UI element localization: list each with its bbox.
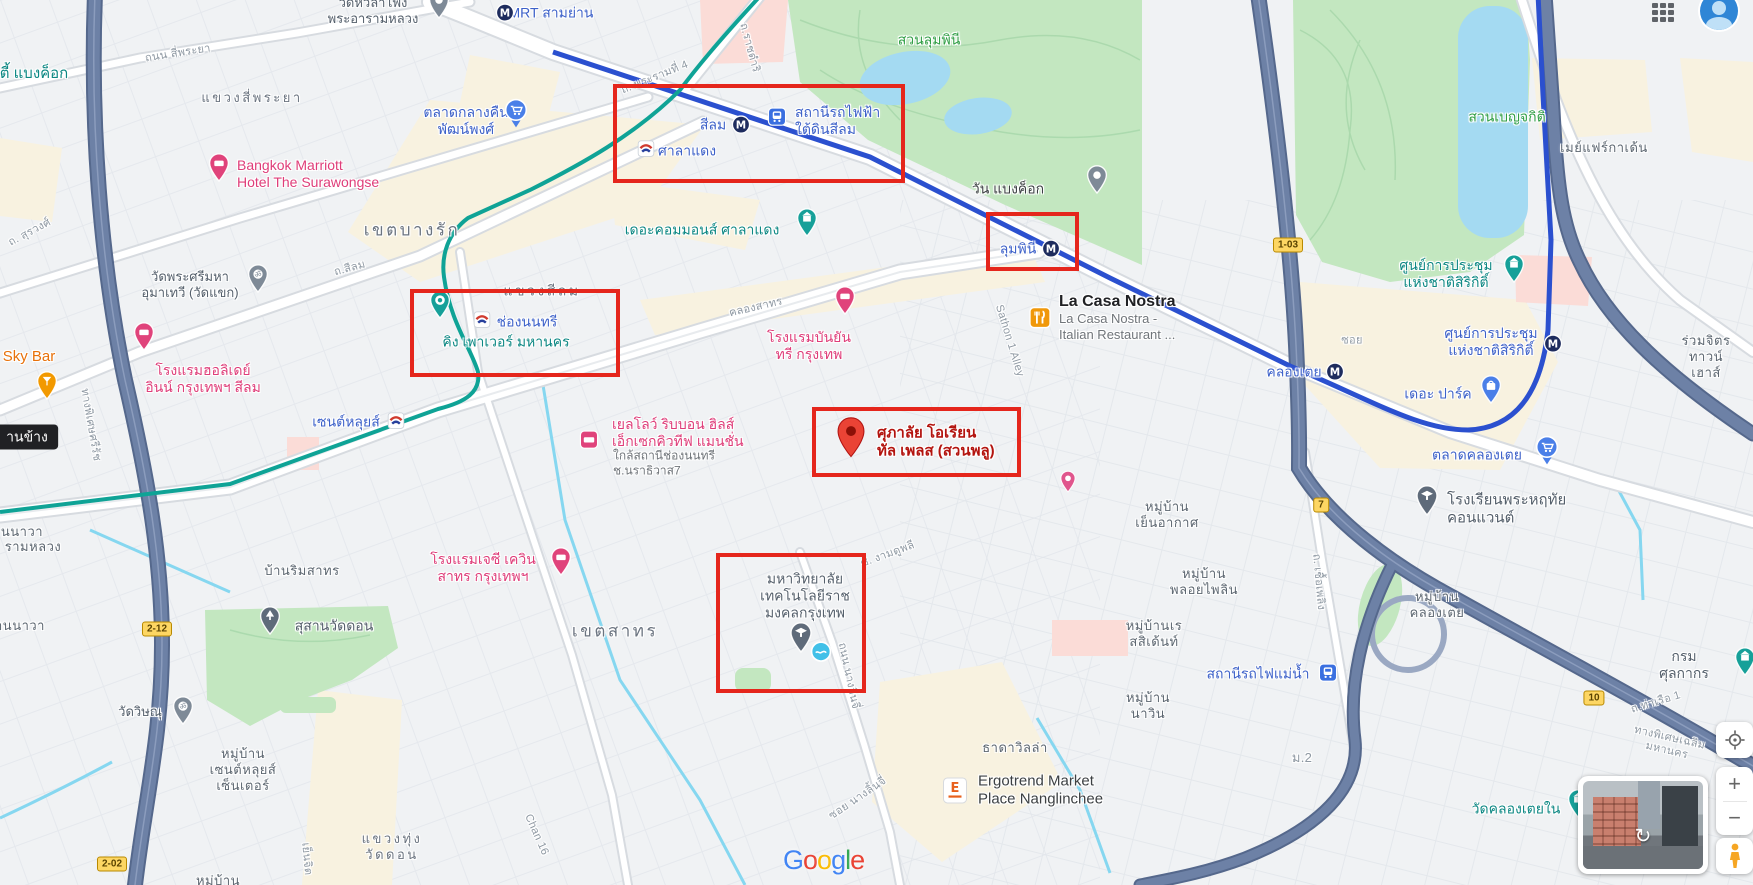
route-shield: 1-03 [1273, 238, 1303, 253]
streetview-photo: ↻ [1583, 781, 1703, 869]
mrt-logo-icon[interactable]: M [732, 115, 751, 134]
label-king-power-mahanakhon[interactable]: คิง เพาเวอร์ มหานคร [442, 333, 569, 350]
streetview-road [1583, 846, 1703, 869]
temple-pin-icon[interactable]: ॐ [248, 264, 269, 293]
label-mooban-nawin: หมู่บ้าน นาวิน [1126, 690, 1170, 722]
shopping-bag-pin-icon[interactable] [1481, 375, 1502, 404]
label-baan-rim-sathorn: บ้านริมสาทร [264, 563, 339, 579]
streetview-thumbnail[interactable]: ↻ [1578, 776, 1708, 874]
label-benjakitti-park[interactable]: สวนเบญจกิติ [1468, 108, 1545, 125]
pegman-icon [1727, 843, 1743, 869]
svg-text:M: M [1548, 338, 1558, 350]
label-sacred-heart-convent-school[interactable]: โรงเรียนพระหฤทัย คอนแวนต์ [1447, 492, 1566, 529]
label-silom-mrt[interactable]: สีลม [700, 116, 726, 133]
hotel-pin-icon[interactable] [551, 547, 572, 576]
label-one-bangkok[interactable]: วัน แบงค็อก [972, 180, 1044, 197]
bts-logo-icon[interactable] [638, 140, 655, 157]
university-pin-icon[interactable] [790, 622, 813, 653]
zoom-out-button[interactable]: − [1716, 802, 1753, 835]
bar-pin-icon[interactable] [37, 371, 58, 400]
mrt-logo-icon[interactable]: M [496, 3, 515, 22]
small-pink-pin-icon[interactable] [1060, 471, 1076, 493]
label-mooban-saint-louis-center: หมู่บ้าน เซนต์หลุยส์ เซ็นเตอร์ [210, 746, 277, 794]
label-mae-nam-railway-station[interactable]: สถานีรถไฟแม่น้ำ [1206, 665, 1309, 682]
label-wat-don-cemetery[interactable]: สุสานวัดดอน [295, 617, 374, 634]
label-wat-khlong-toei-nai[interactable]: วัดคลองเตยใน [1472, 800, 1561, 817]
label-sky-bar[interactable]: Sky Bar [3, 348, 56, 366]
google-maps-app: MRT สามย่านสีลมสถานีรถไฟฟ้า ใต้ดินสีลมศา… [0, 0, 1753, 885]
mrt-logo-icon[interactable]: M [1042, 239, 1061, 258]
label-khlong-toei-mrt[interactable]: คลองเตย [1266, 363, 1321, 380]
label-la-casa-nostra-title[interactable]: La Casa Nostra [1059, 292, 1176, 312]
bts-logo-icon[interactable] [474, 311, 491, 328]
hotel-pin-icon[interactable] [209, 153, 230, 182]
label-khwaeng-si-phraya: แขวงสี่พระยา [201, 90, 302, 106]
my-location-button[interactable] [1716, 722, 1753, 758]
label-rmutk-university[interactable]: มหาวิทยาลัย เทคโนโลยีราช มงคลกรุงเทพ [760, 570, 850, 621]
label-the-commons-saladaeng[interactable]: เดอะคอมมอนส์ ศาลาแดง [625, 221, 780, 238]
label-mooban-khlong-toei: หมู่บ้าน คลองเตย [1410, 589, 1465, 621]
subway-station-icon[interactable] [768, 107, 787, 126]
temple-pin-icon[interactable] [429, 0, 450, 19]
label-ergotrend-market[interactable]: Ergotrend Market Place Nanglinchee [978, 773, 1103, 810]
landmark-pin-icon[interactable] [1504, 254, 1525, 283]
label-jc-kevin-sathorn-hotel[interactable]: โรงแรมเจซี เควิน สาทร กรุงเทพฯ [430, 551, 536, 585]
hotel-pin-icon[interactable] [835, 286, 856, 315]
google-logo-letter: e [850, 845, 864, 875]
label-lumphini-mrt[interactable]: ลุมพินี [1000, 240, 1037, 257]
label-wat-khaek[interactable]: วัดพระศรีมหา อุมาเทวี (วัดแขก) [141, 269, 238, 301]
route-shield: 7 [1313, 498, 1329, 513]
railway-station-icon[interactable] [1319, 663, 1338, 682]
svg-text:M: M [1330, 366, 1340, 378]
label-holiday-inn-silom[interactable]: โรงแรมฮอลิเดย์ อินน์ กรุงเทพฯ สีลม [145, 362, 261, 396]
label-yellow-ribbon-hills[interactable]: เยลโลว์ ริบบอน ฮิลส์ เอ็กเซกคิวทีฟ แมนชั… [612, 416, 744, 450]
label-mooban-yen-akat: หมู่บ้าน เย็นอากาศ [1135, 499, 1198, 531]
label-soi: ซอย [1341, 334, 1362, 347]
label-chong-nonsi-bts[interactable]: ช่องนนทรี [497, 313, 558, 330]
label-wat-vishnu[interactable]: วัดวิษณุ [118, 704, 162, 720]
svg-text:ॐ: ॐ [255, 270, 262, 279]
svg-text:M: M [500, 7, 510, 19]
label-sala-daeng-bts[interactable]: ศาลาแดง [658, 142, 716, 159]
label-supalai-oriental-place[interactable]: ศุภาลัย โอเรียน ทัล เพลส (สวนพลู) [877, 425, 995, 462]
label-sirikit-convention-center[interactable]: ศูนย์การประชุม แห่งชาติสิริกิติ์ [1399, 257, 1492, 291]
label-mu-2: ม.2 [1292, 750, 1312, 766]
label-banyan-tree-hotel[interactable]: โรงแรมบันยัน ทรี กรุงเทพ [767, 329, 851, 363]
google-logo[interactable]: Google [783, 845, 864, 876]
label-ruamchit-townhouse: ร่วมจิตร ทาวน์เฮาส์ [1682, 333, 1731, 381]
label-yen-chit: เย็นจิต [298, 842, 314, 876]
pegman-button[interactable] [1716, 838, 1753, 874]
label-khet-bang-rak: เขตบางรัก [364, 221, 461, 242]
google-logo-letter: g [831, 845, 845, 875]
avatar-person-icon [1712, 1, 1726, 15]
route-shield: 2-02 [97, 857, 127, 872]
streetview-building [1593, 797, 1641, 848]
label-mrt-sam-yan[interactable]: MRT สามย่าน [509, 4, 594, 21]
svg-text:M: M [736, 119, 746, 131]
apps-grid-icon[interactable] [1652, 3, 1674, 22]
label-patpong-night-market[interactable]: ตลาดกลางคืน พัฒน์พงศ์ [423, 104, 508, 138]
shopping-cart-pin-icon[interactable] [1535, 435, 1559, 465]
mrt-logo-icon[interactable]: M [1326, 362, 1345, 381]
label-khlong-toei-market[interactable]: ตลาดคลองเตย [1432, 446, 1522, 463]
google-logo-letter: G [783, 845, 803, 875]
school-pin-icon[interactable] [1416, 485, 1439, 516]
label-wat-hua-lamphong[interactable]: วัดหัวลำโพง พระอารามหลวง [328, 0, 419, 27]
temple-pin-icon[interactable]: ॐ [173, 696, 194, 725]
label-khet-sathorn: เขตสาทร [572, 622, 658, 643]
restaurant-square-icon[interactable] [1029, 307, 1051, 329]
label-mooban-residence: หมู่บ้านเร สสิเด้นท์ [1126, 618, 1183, 650]
bts-logo-icon[interactable] [388, 412, 405, 429]
zoom-in-button[interactable]: + [1716, 768, 1753, 801]
label-lumphini-park[interactable]: สวนลุมพินี [898, 31, 961, 48]
pool-dot-icon[interactable] [811, 641, 832, 662]
place-pin-icon[interactable] [1087, 165, 1108, 194]
svg-text:ॐ: ॐ [180, 702, 187, 711]
destination-pin-icon[interactable] [837, 417, 865, 458]
label-edge-partial-mooban: หมู่บ้าน [196, 873, 240, 885]
streetview-building [1662, 786, 1698, 848]
camera-pin-icon[interactable] [430, 290, 451, 319]
label-bangkok-marriott[interactable]: Bangkok Marriott Hotel The Surawongse [237, 157, 379, 191]
label-customs-department[interactable]: กรมศุลกากร [1650, 648, 1719, 682]
label-edge-partial-nawa: นนาวา [1, 524, 43, 540]
label-la-casa-nostra-sub[interactable]: La Casa Nostra - Italian Restaurant ... [1059, 311, 1175, 343]
route-shield: 2-12 [142, 622, 172, 637]
label-edge-partial-an-nawa: านนาวา [0, 618, 45, 634]
zoom-panel: + − [1716, 767, 1753, 835]
label-khwaeng-thung-wat-don: แขวงทุ่ง วัดดอน [362, 831, 423, 863]
label-saint-louis-bts[interactable]: เซนต์หลุยส์ [312, 413, 380, 430]
hotel-square-icon[interactable] [580, 430, 599, 449]
google-logo-letter: o [803, 845, 817, 875]
svg-text:E: E [951, 781, 960, 796]
streetview-rotate-icon: ↻ [1635, 823, 1652, 848]
avatar-person-icon [1706, 17, 1732, 30]
label-edge-partial-bangkok: ตี้ แบงค็อก [0, 65, 68, 83]
label-mayfair-garden: เมย์แฟร์กาเด้น [1560, 140, 1648, 156]
label-edge-partial-ram-luang: รามหลวง [5, 539, 62, 555]
label-silom-underground-station[interactable]: สถานีรถไฟฟ้า ใต้ดินสีลม [795, 104, 880, 138]
map-tooltip: านข้าง [0, 424, 58, 449]
ergotrend-logo-icon[interactable]: E [943, 777, 968, 804]
label-sirikit-center-mrt[interactable]: ศูนย์การประชุม แห่งชาติสิริกิติ์ [1444, 325, 1537, 359]
mrt-logo-icon[interactable]: M [1544, 334, 1563, 353]
label-thada-villa: ธาดาวิลล่า [982, 740, 1048, 756]
landmark-pin-icon[interactable] [1735, 647, 1753, 676]
label-the-parq[interactable]: เดอะ ปาร์ค [1404, 385, 1471, 402]
svg-text:M: M [1046, 243, 1056, 255]
label-khwaeng-silom: แขวงสีลม [503, 282, 580, 299]
route-shield: 10 [1583, 691, 1604, 706]
landmark-pin-icon[interactable] [797, 208, 818, 237]
google-logo-letter: o [817, 845, 831, 875]
cemetery-pin-icon[interactable] [260, 606, 281, 635]
label-yellow-ribbon-sub[interactable]: ใกล้สถานีช่องนนทรี ช.นราธิวาส7 [613, 448, 715, 477]
label-mooban-ploy-pailin: หมู่บ้าน พลอยไพลิน [1170, 566, 1238, 598]
hotel-pin-icon[interactable] [134, 322, 155, 351]
crosshair-icon [1725, 730, 1745, 750]
shopping-cart-pin-icon[interactable] [504, 98, 528, 128]
